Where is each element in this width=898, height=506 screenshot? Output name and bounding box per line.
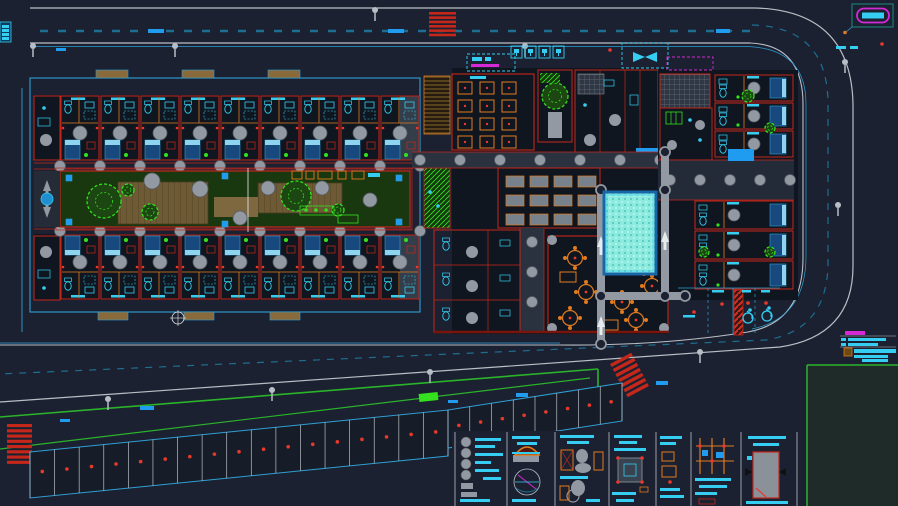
- cad-canvas[interactable]: [0, 0, 898, 506]
- cad-viewport[interactable]: [0, 0, 898, 506]
- construction-detail-panels: [452, 431, 800, 506]
- west-residential-building: [22, 70, 426, 332]
- property-boundary: [807, 365, 898, 506]
